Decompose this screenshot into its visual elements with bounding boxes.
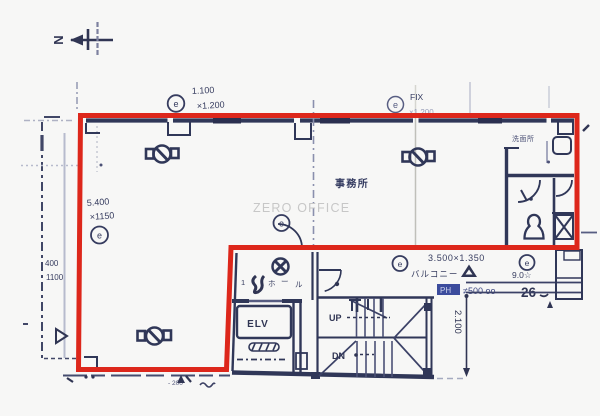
svg-text:e: e xyxy=(525,258,530,268)
svg-text:ー: ー xyxy=(281,277,289,286)
svg-text:1: 1 xyxy=(241,278,245,287)
svg-text:5.400: 5.400 xyxy=(86,196,109,208)
svg-text:e: e xyxy=(173,99,178,109)
svg-text:×1.200: ×1.200 xyxy=(197,100,225,111)
svg-text:事務所: 事務所 xyxy=(335,177,369,190)
svg-text:N: N xyxy=(51,35,66,44)
svg-text:ホ: ホ xyxy=(268,279,276,288)
svg-text:ELV: ELV xyxy=(247,319,269,330)
svg-text:ZERO OFFICE: ZERO OFFICE xyxy=(253,201,350,215)
svg-text:洗面所: 洗面所 xyxy=(512,134,535,143)
svg-text:1100: 1100 xyxy=(46,273,64,282)
svg-text:2.100: 2.100 xyxy=(452,310,463,334)
svg-text:UP: UP xyxy=(329,313,342,323)
svg-text:400: 400 xyxy=(45,259,59,268)
svg-text:e: e xyxy=(398,259,403,269)
svg-text:×1150: ×1150 xyxy=(89,210,114,222)
svg-text:e: e xyxy=(97,231,102,241)
svg-text:バルコニー: バルコニー xyxy=(411,269,458,279)
svg-text:1.100: 1.100 xyxy=(192,85,215,96)
svg-text:ル: ル xyxy=(295,280,303,289)
svg-text:FIX: FIX xyxy=(410,92,424,102)
svg-text:PH: PH xyxy=(440,286,451,295)
svg-text:≠500 oo: ≠500 oo xyxy=(463,286,495,296)
svg-text:DN: DN xyxy=(332,351,345,361)
svg-text:3.500×1.350: 3.500×1.350 xyxy=(428,253,485,263)
svg-text:e: e xyxy=(393,100,398,110)
svg-text:9.0☆: 9.0☆ xyxy=(512,270,532,280)
